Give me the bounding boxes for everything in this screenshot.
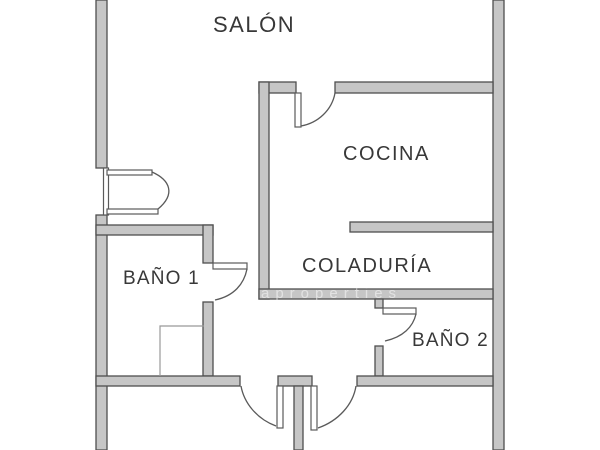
wall-left-upper — [96, 0, 107, 168]
room-label-coladuria: COLADURÍA — [302, 254, 432, 277]
bottom-left-door-arc — [241, 386, 276, 426]
wall-bottom-center-cap — [278, 376, 312, 386]
wall-cocina-top-right — [335, 82, 493, 93]
wall-bottom-center-stem — [294, 386, 303, 450]
room-label-bano2: BAÑO 2 — [412, 329, 489, 351]
cocina-door-arc — [301, 93, 335, 126]
floorplan-page: SALÓN COCINA COLADURÍA BAÑO 1 BAÑO 2 apr… — [0, 0, 600, 450]
shower-tray — [160, 326, 204, 376]
bano1-door — [213, 263, 247, 300]
bottom-left-door — [241, 386, 283, 428]
bano1-door-arc — [215, 269, 247, 300]
wall-left-lower — [96, 215, 107, 450]
wall-bottom-right — [357, 376, 493, 386]
wall-bottom-left — [96, 376, 240, 386]
bano1-door-panel — [213, 263, 247, 269]
bottom-right-door-arc — [318, 386, 356, 428]
wall-cocina-left — [259, 82, 269, 299]
entry-door — [104, 168, 169, 215]
interior-walls — [96, 82, 493, 450]
wall-cocina-coladuria-divider — [350, 222, 493, 232]
cocina-door — [295, 93, 335, 127]
room-label-salon: SALÓN — [213, 12, 295, 37]
wall-right — [493, 0, 504, 450]
agency-watermark: aproperties — [261, 285, 402, 302]
wall-bano1-right-upper — [203, 225, 213, 263]
wall-bano1-top — [96, 225, 213, 235]
bottom-left-door-panel — [277, 386, 283, 428]
floorplan-drawing: SALÓN COCINA COLADURÍA BAÑO 1 BAÑO 2 apr… — [0, 0, 600, 450]
room-label-bano1: BAÑO 1 — [123, 267, 200, 289]
cocina-door-panel — [295, 93, 301, 127]
entry-door-panel-bottom — [107, 209, 158, 214]
wall-bano2-left-lower — [375, 346, 383, 376]
entry-door-arc — [152, 172, 169, 209]
wall-bano1-right-lower — [203, 302, 213, 376]
room-label-cocina: COCINA — [343, 143, 430, 165]
bano2-door-panel — [383, 308, 416, 314]
bottom-right-door-panel — [311, 386, 317, 430]
bottom-right-door — [311, 386, 356, 430]
entry-door-panel-top — [107, 170, 152, 175]
